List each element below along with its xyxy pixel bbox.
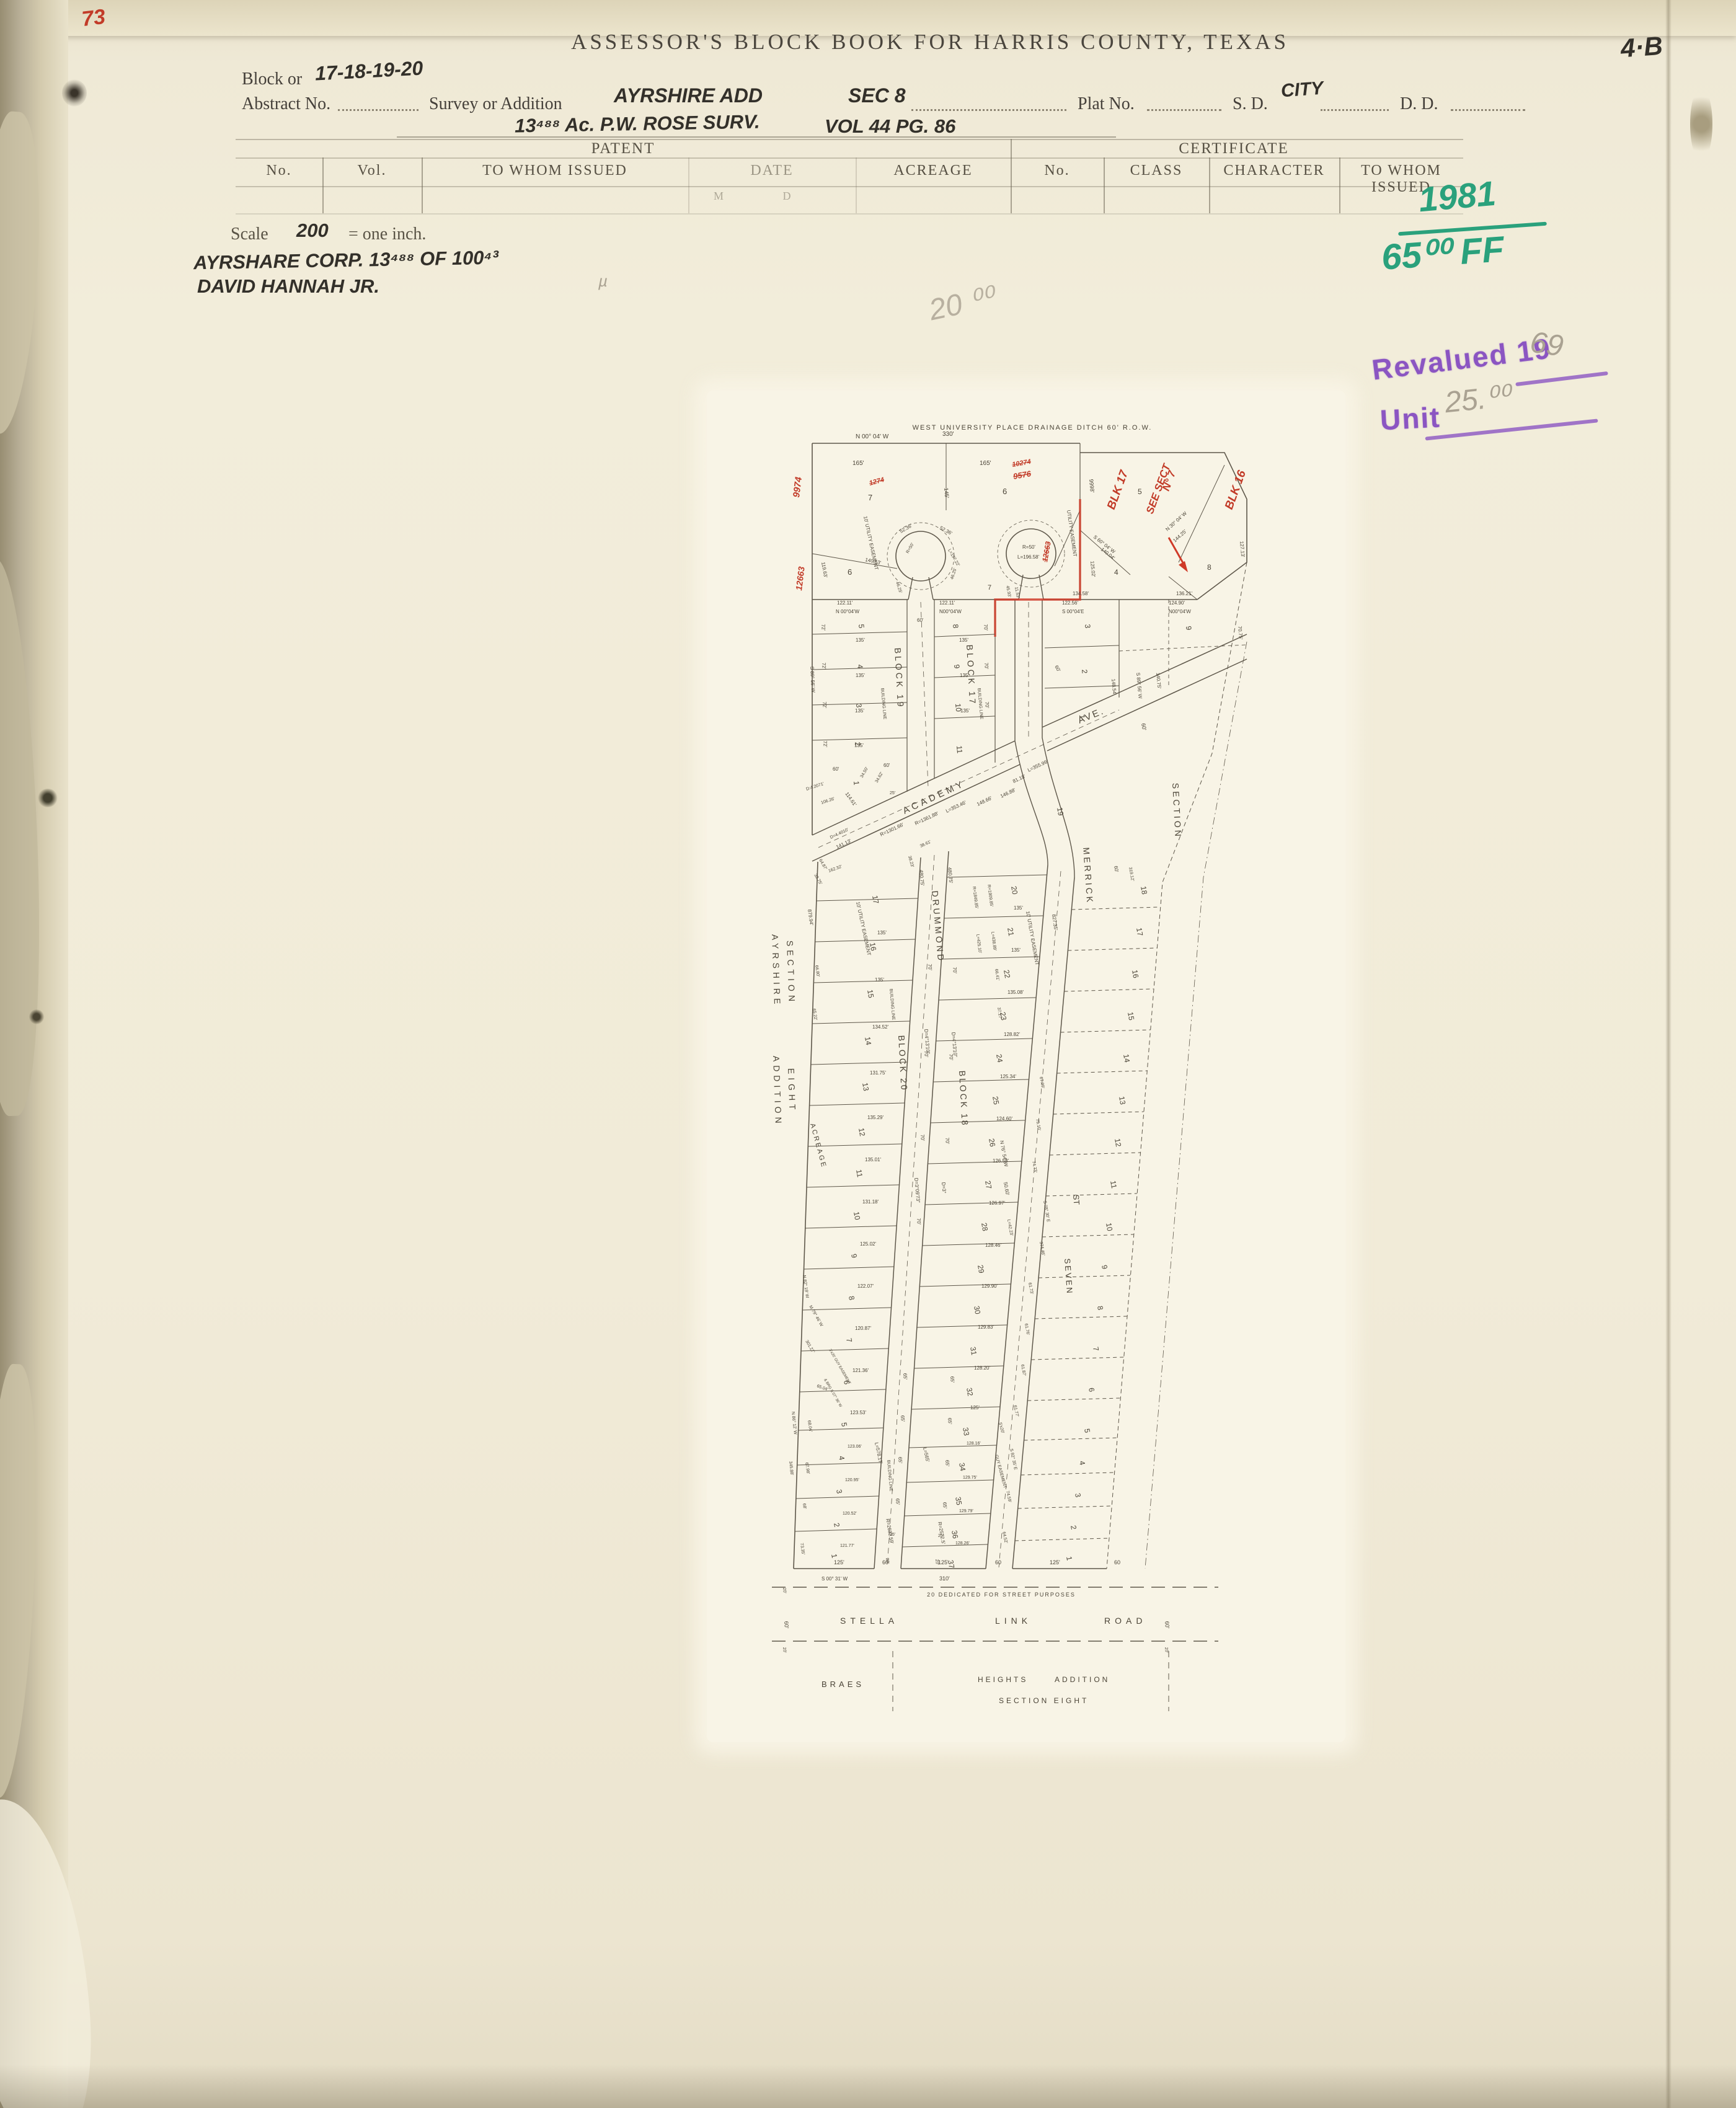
- map-label: 33: [961, 1427, 971, 1437]
- map-label: ADDITION: [1055, 1675, 1110, 1684]
- map-label: N 00° 04' W: [856, 433, 889, 440]
- map-label: 162.32': [828, 865, 843, 874]
- map-label: 136.21': [1176, 591, 1192, 596]
- map-label: 66.41': [994, 968, 1000, 981]
- map-label: 64.52': [1001, 1531, 1008, 1544]
- abstract-dots: [338, 94, 418, 114]
- map-label: L=197.22': [947, 549, 960, 567]
- map-label: 7: [844, 1337, 854, 1343]
- map-label: 125': [834, 1559, 844, 1565]
- map-label: 65': [902, 1373, 908, 1380]
- map-label: 22: [1002, 969, 1012, 979]
- map-label: ADDITION: [771, 1056, 784, 1127]
- map-label: 129.83': [978, 1324, 994, 1330]
- map-label: 19: [1055, 807, 1065, 817]
- map-label: 120.52': [843, 1512, 857, 1516]
- map-label: 135': [856, 637, 865, 643]
- stamp-unit: Unit: [1379, 400, 1441, 436]
- plat-dots: [1147, 94, 1221, 114]
- survey-value: AYRSHIRE ADD: [614, 84, 763, 107]
- map-label: 123.06': [848, 1445, 862, 1449]
- col-cert-no: No.: [1011, 162, 1104, 179]
- map-label: 2: [1080, 669, 1089, 674]
- sheet-code: 4·B: [1619, 31, 1663, 64]
- map-label: 12663: [1040, 541, 1053, 563]
- lot-line: [939, 998, 1036, 1000]
- map-label: 146.88': [999, 787, 1017, 799]
- map-label: S 00° 31' W: [821, 1576, 848, 1582]
- map-label: SEVEN: [1063, 1258, 1074, 1295]
- map-label: 10: [1104, 1222, 1114, 1232]
- map-label: 60: [882, 1559, 888, 1565]
- map-label: 123.53': [850, 1410, 866, 1415]
- col-vol: Vol.: [322, 162, 422, 179]
- map-label: R=2572.5': [937, 1521, 946, 1545]
- col-date: DATE: [688, 162, 856, 179]
- map-label: 52.36': [939, 525, 954, 536]
- lot-line: [812, 632, 907, 634]
- map-label: 131.75': [870, 1070, 886, 1076]
- stain: [29, 1009, 45, 1024]
- map-label: 9998': [1088, 479, 1096, 493]
- map-label: 64.87': [818, 859, 827, 871]
- map-label: 135.01': [865, 1157, 881, 1162]
- map-label: 141.13': [835, 838, 852, 849]
- date-sub-d: D: [769, 190, 806, 203]
- map-label: UTILITY EASEMENT: [1066, 510, 1078, 557]
- map-label: 4: [1078, 1460, 1087, 1466]
- map-label: 8: [1096, 1305, 1105, 1311]
- map-label: 4: [837, 1455, 846, 1461]
- map-label: 135': [856, 673, 865, 678]
- map-label: 60: [1114, 1559, 1120, 1565]
- map-label: 67.99': [1038, 1076, 1045, 1089]
- map-label: 60': [833, 766, 839, 772]
- map-label: 45.93': [1005, 585, 1011, 598]
- lot-line: [811, 1062, 907, 1065]
- map-label: 114.61': [844, 791, 857, 807]
- lot-line: [1024, 1438, 1117, 1440]
- pencil-mark: µ: [598, 272, 608, 291]
- map-label: 61.77': [1012, 1405, 1019, 1417]
- map-label: 135': [1014, 905, 1023, 911]
- map-label: 24: [994, 1053, 1004, 1063]
- map-label: SECTION: [1171, 782, 1184, 839]
- map-label: 9: [1100, 1264, 1109, 1270]
- map-label: 148.66': [976, 795, 993, 807]
- map-label: 135': [854, 743, 864, 748]
- lot-line: [805, 1226, 897, 1228]
- map-label: 125': [1050, 1559, 1060, 1565]
- dd-label: D. D.: [1400, 94, 1438, 114]
- map-label: EIGHT: [786, 1068, 798, 1114]
- paper-crease: [1665, 0, 1672, 2108]
- map-label: 72': [821, 662, 827, 670]
- map-label: 11: [854, 1169, 864, 1178]
- map-label: 61.73': [1027, 1282, 1034, 1295]
- map-label: 36: [950, 1530, 960, 1539]
- lot-line: [911, 1407, 1000, 1409]
- map-label: 124.90': [1169, 600, 1185, 606]
- lot-line: [800, 1389, 886, 1392]
- owner-line1: AYRSHARE CORP. 13⁴⁸⁸ OF 100⁴³: [193, 247, 499, 275]
- map-label: SECTION: [785, 941, 797, 1006]
- map-label: L=425.10': [975, 934, 982, 953]
- map-label: 30: [972, 1305, 982, 1315]
- lot-line: [1068, 948, 1157, 950]
- map-label: 25': [890, 1533, 895, 1537]
- map-label: ROAD: [1104, 1616, 1146, 1626]
- map-label: L=42.23': [1006, 1219, 1014, 1236]
- map-label: HEIGHTS: [978, 1675, 1028, 1684]
- map-label: 7: [868, 493, 872, 502]
- map-label: 11: [1109, 1180, 1118, 1189]
- lot-line: [1015, 1538, 1109, 1541]
- stamp-line2-rule: [1425, 418, 1598, 440]
- map-label: GUY EASEMENT: [994, 1455, 1007, 1489]
- map-label: 38.23': [907, 856, 914, 868]
- paper-bottom-shadow: [0, 2065, 1736, 2108]
- sd-dots: [1321, 94, 1389, 114]
- map-label: 34.50': [860, 766, 869, 779]
- map-label: 827.35': [1051, 914, 1059, 931]
- map-label: 31: [968, 1346, 978, 1356]
- volume-note: VOL 44 PG. 86: [825, 115, 955, 138]
- map-label: 26: [987, 1138, 997, 1148]
- map-label: 121.77': [840, 1544, 854, 1548]
- lot-line: [802, 1308, 891, 1310]
- lot-line: [1064, 989, 1153, 991]
- map-label: R=1849.85': [972, 886, 978, 908]
- plat-dots-left: [911, 94, 1066, 114]
- lot-line: [1018, 1506, 1112, 1508]
- map-label: 148.54': [1110, 678, 1117, 695]
- map-label: 125.34': [1000, 1074, 1016, 1079]
- map-label: 8: [1207, 563, 1211, 572]
- lot-line: [813, 980, 912, 983]
- certificate-header: CERTIFICATE: [1011, 140, 1457, 157]
- map-label: 67.98': [804, 1462, 810, 1474]
- map-label: 122.11': [939, 600, 955, 606]
- map-label: 20: [1009, 885, 1019, 895]
- lot-line: [1042, 1234, 1134, 1237]
- map-label: N00°04'W: [1169, 609, 1191, 614]
- map-label: 134.58': [1073, 591, 1089, 596]
- stain: [1690, 87, 1712, 161]
- map-label: 140.75': [1155, 672, 1162, 689]
- map-label: 10' UTILITY EASEMENT: [1025, 911, 1040, 966]
- lot-line: [1050, 1153, 1140, 1155]
- map-label: 46.25': [895, 581, 902, 593]
- map-label: 75.10': [1035, 1118, 1041, 1131]
- map-label: 20': [1164, 1647, 1169, 1654]
- map-label: N00°04'W: [939, 609, 962, 614]
- map-label: 135': [960, 708, 970, 714]
- acreage-note: 13⁴⁸⁸ Ac. P.W. ROSE SURV.: [515, 111, 760, 138]
- map-label: S 00°04'E: [1062, 609, 1084, 614]
- map-label: 32.75': [813, 874, 822, 886]
- map-label: 165': [980, 460, 991, 467]
- map-label: 319.12': [1128, 867, 1135, 882]
- map-label: 60': [1164, 1621, 1171, 1629]
- lot-line: [933, 1079, 1029, 1082]
- map-label: 65': [895, 1498, 901, 1505]
- map-label: 135': [855, 708, 864, 714]
- map-label: BLOCK 20: [897, 1035, 910, 1092]
- map-label: 28: [980, 1222, 990, 1232]
- map-label: R=50': [1022, 544, 1035, 550]
- map-label: AVE.: [1076, 706, 1106, 726]
- map-label: 3: [835, 1489, 844, 1494]
- map-label: 34.62': [875, 771, 884, 784]
- lot-line: [1045, 645, 1119, 648]
- map-label: BLK 16: [1223, 469, 1249, 511]
- lot-line: [796, 1496, 879, 1499]
- map-label: D:4.2071': [805, 782, 824, 792]
- map-label: 135': [1011, 947, 1021, 953]
- map-label: 122.11': [837, 600, 853, 606]
- map-label: 124.60': [996, 1116, 1012, 1122]
- map-label: 120.87': [855, 1326, 871, 1331]
- map-label: 135': [959, 637, 968, 643]
- lot-line: [807, 1185, 899, 1187]
- map-label: 1: [830, 1553, 839, 1559]
- map-label: 125.02': [1089, 560, 1096, 577]
- scanned-page: 73 ASSESSOR'S BLOCK BOOK FOR HARRIS COUN…: [0, 0, 1736, 2108]
- scale-equals: = one inch.: [348, 224, 426, 244]
- map-label: 72': [822, 740, 828, 748]
- map-label: 12663: [794, 566, 807, 591]
- dd-dots: [1451, 94, 1525, 114]
- map-label: 125.02': [860, 1241, 876, 1247]
- map-label: 9: [1184, 626, 1193, 631]
- lot-line: [1046, 1193, 1137, 1196]
- map-label: 25': [890, 791, 895, 795]
- map-label: 125': [938, 1559, 949, 1565]
- map-label: 20': [782, 1588, 787, 1594]
- map-label: 29: [976, 1264, 986, 1274]
- map-label: 81.18': [1012, 773, 1027, 784]
- map-label: 60': [783, 1621, 790, 1629]
- map-label: 129.90': [981, 1283, 998, 1289]
- abstract-label: Abstract No.: [242, 94, 330, 114]
- lot-line: [934, 716, 995, 719]
- map-label: BLOCK 19: [893, 647, 906, 709]
- map-label: 4: [1114, 568, 1118, 577]
- map-label: 121.36': [852, 1368, 869, 1373]
- col-class: CLASS: [1104, 162, 1209, 179]
- map-label: & BRG S 07° 36' W: [823, 1378, 842, 1408]
- map-label: 34: [957, 1462, 967, 1472]
- map-label: 3: [1073, 1492, 1083, 1498]
- lot-line: [795, 1529, 877, 1531]
- map-label: 7: [1091, 1346, 1100, 1352]
- map-label: 15: [1126, 1011, 1136, 1021]
- map-label: ACADEMY: [901, 778, 967, 817]
- map-label: 61.87': [1020, 1364, 1026, 1376]
- block-label: Block or: [242, 69, 302, 89]
- map-label: L=355.99': [1027, 759, 1049, 773]
- lot-line: [817, 898, 918, 901]
- map-label: 61.76': [1024, 1323, 1030, 1335]
- map-label: 25': [938, 1534, 944, 1538]
- page-title: ASSESSOR'S BLOCK BOOK FOR HARRIS COUNTY,…: [558, 30, 1302, 55]
- scale-value: 200: [296, 219, 329, 242]
- lot-line: [812, 738, 907, 740]
- lot-line: [1035, 1316, 1127, 1319]
- map-label: 125': [970, 1405, 980, 1410]
- map-label: 21: [1006, 927, 1016, 937]
- lot-line: [1071, 907, 1160, 910]
- map-label: 2: [1069, 1525, 1078, 1530]
- map-label: 129.79': [959, 1509, 973, 1513]
- map-label: LINK: [995, 1616, 1032, 1626]
- map-label: L=438.89': [990, 931, 997, 950]
- sheet-number-red: 73: [81, 5, 107, 32]
- map-label: 60': [917, 618, 924, 623]
- header-rule: [397, 136, 1116, 138]
- map-label: BUILDING LINE: [888, 989, 895, 1021]
- map-label: 2: [832, 1522, 841, 1528]
- map-label: 70': [948, 1053, 954, 1061]
- lot-line: [1027, 1398, 1120, 1401]
- lot-line: [906, 1480, 993, 1482]
- map-label: 5: [839, 1422, 849, 1427]
- map-label: 11: [955, 745, 964, 754]
- map-label: 135.29': [867, 1115, 883, 1120]
- map-label: 37.17': [996, 1007, 1003, 1019]
- date-sub-m: M: [701, 190, 738, 203]
- map-label: 60': [1140, 723, 1148, 732]
- block-value: 17-18-19-20: [314, 56, 423, 85]
- map-label: 65': [897, 1456, 903, 1464]
- map-label: 8: [951, 624, 960, 629]
- lot-line: [812, 1021, 910, 1024]
- lot-line: [934, 634, 995, 637]
- map-label: 65': [942, 1502, 948, 1509]
- map-label: 135': [877, 930, 887, 936]
- map-label: STELLA: [840, 1616, 898, 1626]
- map-label: 50.60': [1003, 1182, 1011, 1196]
- map-label: 6: [848, 567, 852, 577]
- stain: [37, 789, 58, 807]
- map-label: 65': [949, 1376, 955, 1383]
- lot-line: [1031, 1357, 1123, 1360]
- map-label: 65': [944, 1459, 950, 1467]
- map-label: D=3°: [941, 1182, 947, 1193]
- map-label: 128.16': [967, 1441, 981, 1446]
- patent-header: PATENT: [236, 140, 1011, 157]
- map-label: L=353.46': [945, 800, 967, 814]
- lot-line: [902, 1544, 988, 1547]
- map-label: 9: [952, 664, 962, 669]
- map-label: R=1361.88': [914, 810, 939, 826]
- map-label: 68': [802, 1503, 807, 1509]
- map-label: 5'x20': [998, 1422, 1004, 1434]
- lot-line: [905, 1513, 991, 1516]
- map-label: SECTION EIGHT: [999, 1696, 1089, 1705]
- col-no: No.: [236, 162, 322, 179]
- map-label: 72': [820, 624, 826, 631]
- map-label: 165': [852, 460, 864, 467]
- map-label: 35: [954, 1496, 963, 1506]
- map-label: 9576: [1012, 469, 1032, 481]
- lot-line: [797, 1463, 881, 1465]
- survey-label: Survey or Addition: [429, 94, 562, 114]
- map-label: 10274: [1011, 458, 1031, 469]
- map-label: D=4.4010': [830, 828, 849, 840]
- map-label: BLOCK 18: [957, 1070, 970, 1127]
- plat-labels: WEST UNIVERSITY PLACE DRAINAGE DITCH 60'…: [770, 424, 1249, 1705]
- map-label: 20 DEDICATED FOR STREET PURPOSES: [927, 1592, 1076, 1598]
- lot-line: [1053, 1112, 1144, 1114]
- map-label: L=196.58': [1017, 554, 1040, 560]
- map-label: 5: [857, 624, 866, 629]
- lot-line: [947, 875, 1047, 877]
- map-label: 60': [883, 763, 890, 768]
- map-label: 7: [988, 584, 991, 591]
- map-label: BLK 17: [1105, 468, 1131, 511]
- map-label: BUILDING LINE: [880, 688, 887, 720]
- map-label: 17: [1135, 927, 1145, 937]
- map-label: 12: [1113, 1138, 1123, 1148]
- map-label: 74.59': [1005, 1490, 1012, 1503]
- stamp-revalued: Revalued 19: [1370, 332, 1553, 387]
- stain: [62, 79, 87, 107]
- map-label: 70': [919, 1134, 926, 1141]
- map-label: 65': [900, 1415, 906, 1422]
- map-label: 6: [1003, 487, 1007, 496]
- map-label: 5: [1138, 487, 1142, 496]
- map-label: 14: [863, 1036, 873, 1046]
- map-label: 374.46': [1038, 1241, 1045, 1256]
- map-label: 126.97': [989, 1200, 1005, 1206]
- map-label: 330': [942, 431, 954, 438]
- lot-line: [1038, 1275, 1130, 1278]
- map-label: 122.56': [1062, 600, 1078, 606]
- red-arrow-head: [1179, 561, 1188, 572]
- map-label: 135': [875, 977, 884, 983]
- plat-label: Plat No.: [1078, 94, 1135, 114]
- map-label: MERRICK: [1081, 847, 1095, 905]
- map-label: 310': [939, 1575, 950, 1582]
- map-label: 73.35': [799, 1543, 805, 1555]
- map-label: 12: [857, 1127, 867, 1137]
- map-label: 127.13': [1239, 541, 1246, 557]
- map-label: 32: [965, 1387, 975, 1397]
- map-label: 27: [983, 1180, 993, 1190]
- map-label: 70': [983, 624, 989, 631]
- map-label: 52.36': [899, 523, 914, 534]
- map-label: N 30° 04' W: [1164, 510, 1188, 532]
- map-label: S 89° 56' W: [1135, 672, 1143, 699]
- map-label: 70': [927, 963, 933, 971]
- col-to-whom-issued: TO WHOM ISSUED: [422, 162, 688, 179]
- map-label: 65': [947, 1417, 953, 1425]
- map-label: 25: [991, 1096, 1001, 1105]
- map-label: BUILDING LINE: [886, 1460, 893, 1492]
- map-label: 66.80': [814, 965, 820, 977]
- map-label: 134.52': [872, 1024, 888, 1030]
- patent-certificate-table: PATENT CERTIFICATE No. Vol. TO WHOM ISSU…: [236, 139, 1463, 213]
- pencil-amount: 20 ⁰⁰: [926, 280, 997, 328]
- lot-line: [941, 957, 1039, 959]
- col-character: CHARACTER: [1209, 162, 1339, 179]
- map-label: 70': [983, 662, 990, 670]
- map-label: 60': [1053, 665, 1061, 673]
- map-label: 120.95': [845, 1478, 859, 1482]
- stamp-line1-rule: [1515, 371, 1608, 386]
